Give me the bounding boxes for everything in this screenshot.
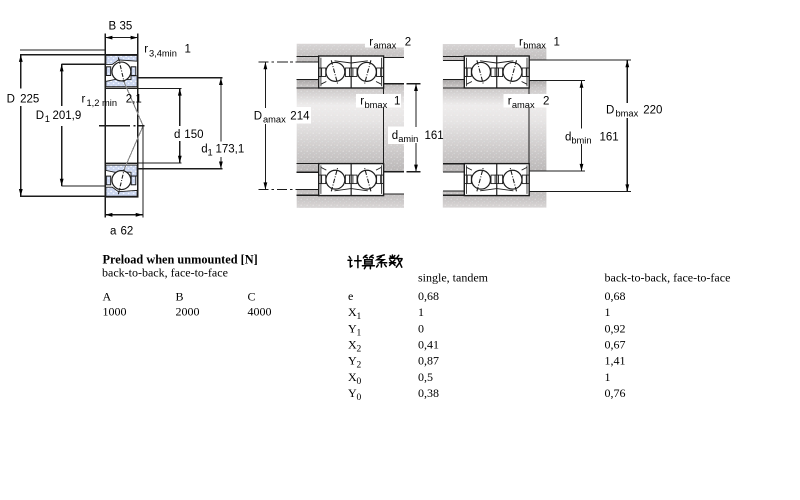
svg-text:0,68: 0,68 — [605, 289, 626, 303]
svg-text:D: D — [606, 105, 614, 117]
svg-text:0,76: 0,76 — [605, 386, 626, 400]
svg-text:1: 1 — [418, 305, 424, 319]
svg-text:amax: amax — [374, 41, 397, 51]
svg-text:173,1: 173,1 — [216, 144, 245, 156]
svg-text:0: 0 — [357, 377, 362, 387]
svg-text:2: 2 — [543, 96, 549, 108]
svg-text:62: 62 — [121, 226, 134, 238]
svg-text:C: C — [248, 290, 256, 304]
svg-text:4000: 4000 — [248, 305, 272, 319]
svg-text:bmin: bmin — [571, 136, 591, 146]
svg-text:1: 1 — [357, 312, 362, 322]
svg-text:1: 1 — [185, 44, 191, 56]
svg-text:a: a — [110, 226, 117, 238]
svg-text:bmax: bmax — [523, 41, 546, 51]
svg-text:0: 0 — [418, 321, 424, 335]
svg-text:B: B — [109, 21, 117, 33]
svg-text:0: 0 — [357, 393, 362, 403]
svg-text:0,68: 0,68 — [418, 289, 439, 303]
svg-text:0,38: 0,38 — [418, 386, 439, 400]
svg-text:D: D — [254, 111, 262, 123]
svg-text:0,87: 0,87 — [418, 354, 439, 368]
svg-text:amax: amax — [512, 100, 535, 110]
svg-text:back-to-back, face-to-face: back-to-back, face-to-face — [102, 266, 228, 280]
svg-text:2000: 2000 — [176, 305, 200, 319]
svg-text:bmax: bmax — [616, 109, 639, 119]
svg-text:1: 1 — [357, 328, 362, 338]
svg-text:214: 214 — [290, 111, 310, 123]
svg-text:0,41: 0,41 — [418, 338, 439, 352]
svg-text:161: 161 — [425, 130, 444, 142]
svg-text:r: r — [144, 44, 148, 56]
svg-text:A: A — [103, 290, 112, 304]
svg-text:1000: 1000 — [103, 305, 127, 319]
svg-text:Preload when unmounted [N]: Preload when unmounted [N] — [103, 253, 258, 267]
svg-text:D: D — [7, 94, 15, 106]
svg-text:back-to-back, face-to-face: back-to-back, face-to-face — [605, 271, 731, 285]
svg-text:d: d — [174, 129, 180, 141]
svg-text:amin: amin — [398, 134, 418, 144]
svg-text:2: 2 — [405, 37, 411, 49]
svg-text:2,1: 2,1 — [126, 94, 142, 106]
svg-text:1: 1 — [208, 148, 213, 158]
svg-text:150: 150 — [184, 129, 203, 141]
svg-text:1: 1 — [605, 370, 611, 384]
svg-text:bmax: bmax — [365, 100, 388, 110]
svg-text:r: r — [82, 94, 86, 106]
svg-text:B: B — [176, 290, 184, 304]
svg-text:1: 1 — [554, 37, 560, 49]
svg-text:1,41: 1,41 — [605, 354, 626, 368]
svg-text:amax: amax — [263, 115, 286, 125]
svg-text:2: 2 — [357, 345, 362, 355]
svg-text:0,5: 0,5 — [418, 370, 433, 384]
svg-text:220: 220 — [643, 105, 662, 117]
svg-text:2: 2 — [357, 361, 362, 371]
svg-text:single, tandem: single, tandem — [418, 271, 489, 285]
svg-text:161: 161 — [600, 132, 619, 144]
svg-text:1: 1 — [605, 305, 611, 319]
svg-text:1,2 min: 1,2 min — [87, 98, 118, 108]
svg-text:1: 1 — [394, 96, 400, 108]
svg-text:D: D — [36, 110, 44, 122]
svg-text:1: 1 — [45, 114, 50, 124]
svg-text:e: e — [348, 289, 353, 303]
svg-text:0,67: 0,67 — [605, 338, 626, 352]
svg-text:3,4min: 3,4min — [149, 49, 177, 59]
svg-text:201,9: 201,9 — [53, 110, 82, 122]
svg-text:225: 225 — [20, 94, 39, 106]
svg-text:0,92: 0,92 — [605, 321, 626, 335]
svg-text:35: 35 — [120, 21, 133, 33]
